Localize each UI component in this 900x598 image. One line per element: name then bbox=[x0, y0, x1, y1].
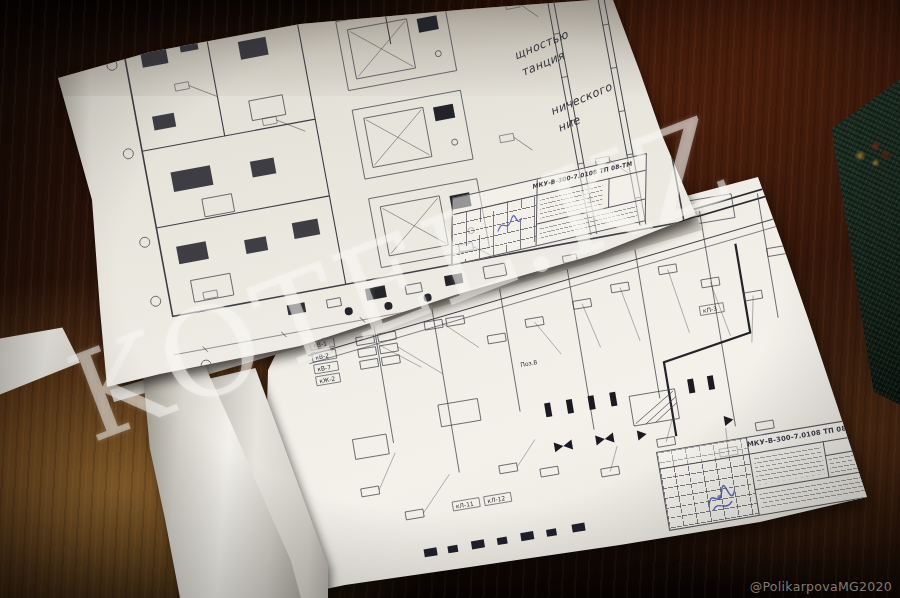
photographer-credit: @PolikarpovaMG2020 bbox=[750, 579, 892, 594]
photo-of-blueprints: кВ-1 кВ-2 кВ-7 bbox=[0, 0, 900, 598]
